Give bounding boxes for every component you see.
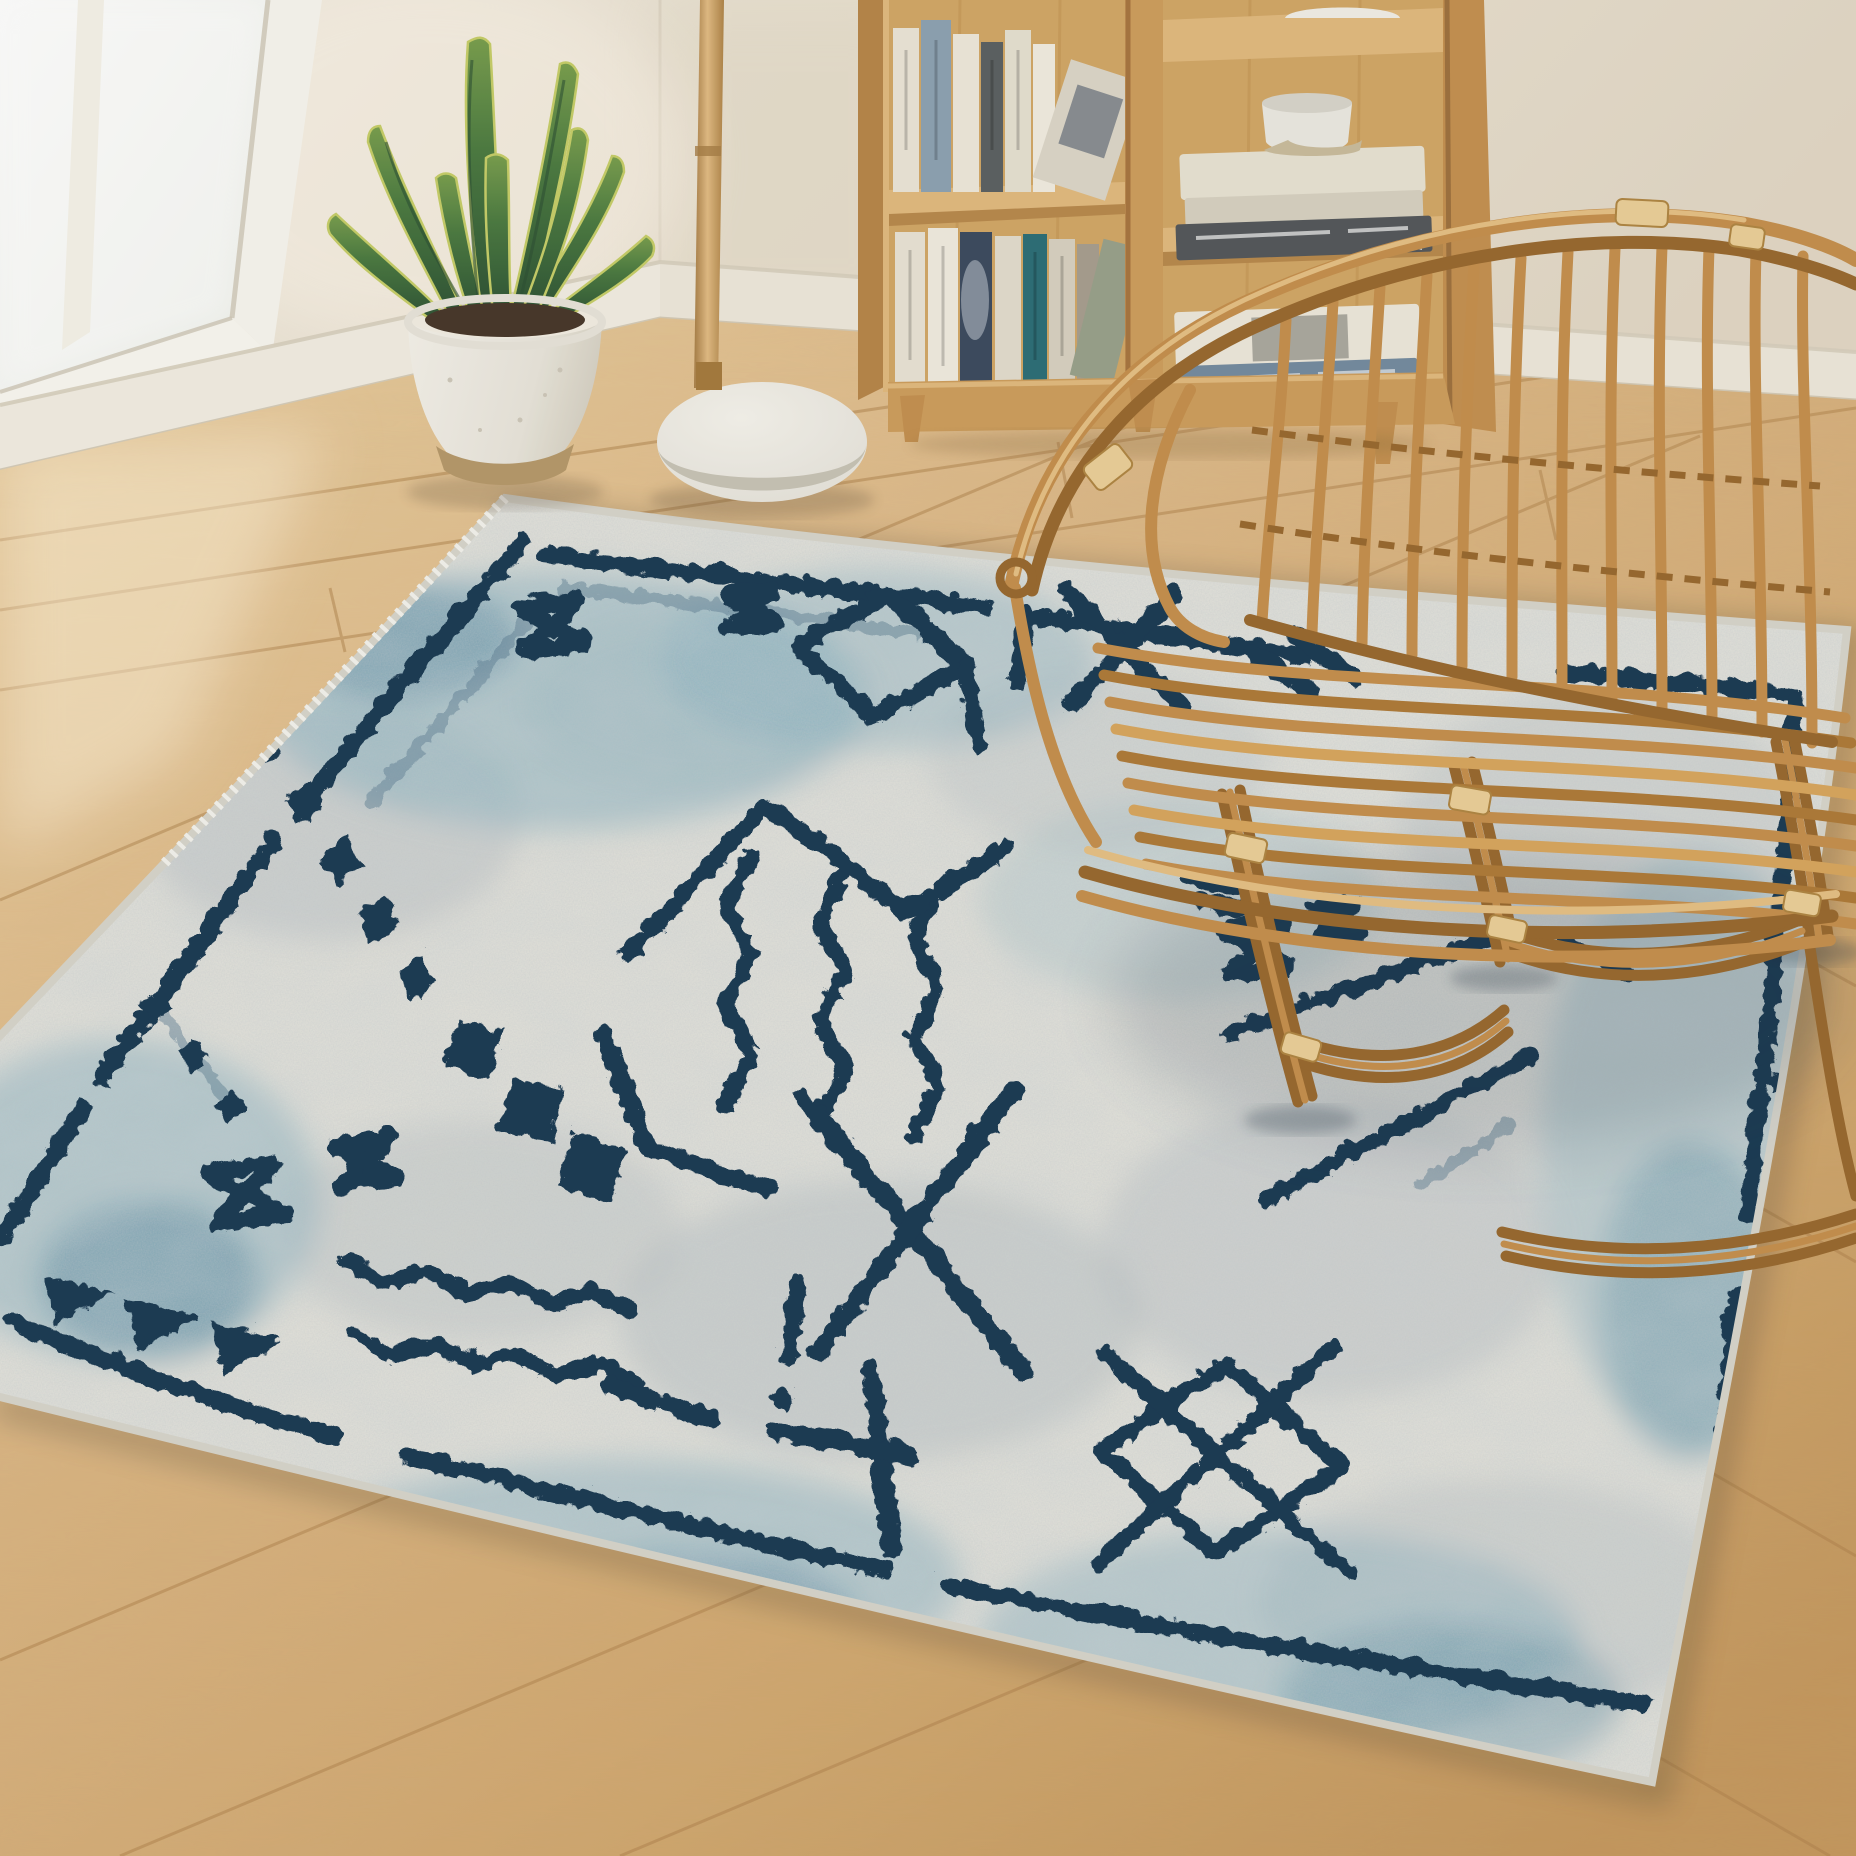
- room-photo: [0, 0, 1856, 1856]
- photo-vignette: [0, 0, 1856, 1856]
- scene-canvas: [0, 0, 1856, 1856]
